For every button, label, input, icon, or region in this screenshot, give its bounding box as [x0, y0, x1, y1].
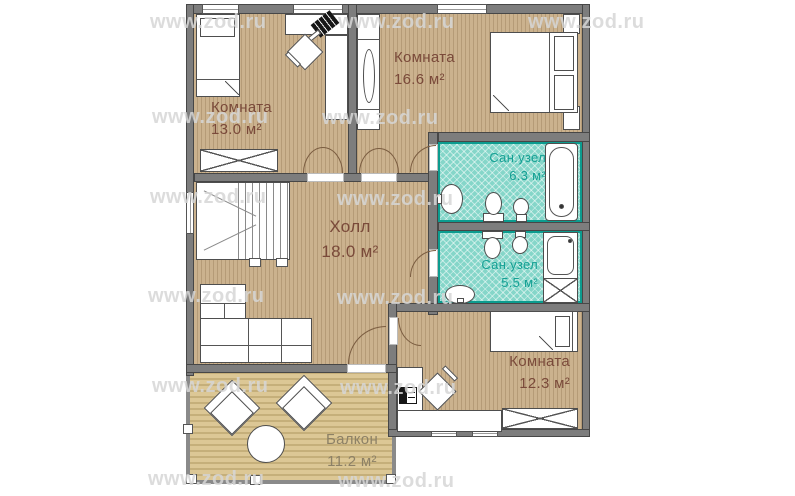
computer-icon: [399, 387, 417, 404]
drain: [568, 239, 572, 243]
faucet-icon: [457, 298, 464, 303]
bath-6-name: Сан.узел: [460, 149, 546, 167]
balcony-post: [186, 474, 197, 484]
room-166-label: Комната 16.6 м²: [394, 47, 455, 91]
balcony-post: [183, 424, 193, 434]
balcony-post: [250, 475, 261, 485]
balcony-rail-bottom: [186, 480, 396, 484]
hall-area: 18.0 м²: [298, 239, 402, 264]
sofa-icon: [200, 318, 312, 363]
faucet-icon: [437, 194, 442, 204]
shower-step: [543, 278, 578, 303]
balcony-name: Балкон: [303, 429, 401, 451]
round-table-icon: [247, 425, 285, 463]
wall-between-baths: [438, 222, 590, 231]
desk-icon: [397, 410, 502, 432]
bed-icon: [490, 311, 578, 352]
bed-icon: [196, 14, 240, 97]
door-opening-room13: [307, 173, 344, 182]
bath-5-area: 5.5 м²: [452, 274, 538, 292]
bidet-base: [516, 214, 527, 222]
nightstand-icon: [563, 14, 580, 34]
room-123-label: Комната 12.3 м²: [478, 351, 570, 395]
blanket-fold: [225, 81, 239, 95]
pillow-icon: [554, 75, 574, 110]
room-123-name: Комната: [478, 351, 570, 373]
bath-5-name: Сан.узел: [452, 256, 538, 274]
sink-icon: [440, 184, 463, 214]
wall-right: [582, 4, 590, 437]
room-166-name: Комната: [394, 47, 455, 69]
mirror-icon: [363, 49, 375, 103]
door-opening-balcony: [347, 364, 386, 373]
blanket-fold: [539, 336, 553, 350]
room-166-area: 16.6 м²: [394, 69, 455, 91]
stair-post: [276, 258, 288, 267]
stair-post: [249, 258, 261, 267]
window: [186, 192, 194, 234]
room-123-area: 12.3 м²: [478, 373, 570, 395]
wardrobe-icon: [357, 14, 380, 130]
shower-icon: [543, 232, 578, 279]
window: [437, 4, 487, 14]
desk-icon: [325, 35, 348, 120]
balcony-post: [386, 474, 396, 484]
pillow-icon: [200, 18, 235, 37]
wall-top: [186, 4, 590, 14]
bath-5-label: Сан.узел 5.5 м²: [452, 256, 538, 292]
hall-name: Холл: [298, 214, 402, 239]
wall-between-top-rooms: [348, 4, 357, 181]
room-13-label: Комната 13.0 м²: [211, 97, 272, 141]
wardrobe-icon: [200, 149, 278, 172]
room-13-area: 13.0 м²: [211, 119, 272, 141]
staircase-icon: [196, 182, 290, 260]
toilet-icon: [485, 192, 502, 215]
double-bed-icon: [490, 32, 578, 113]
hall-label: Холл 18.0 м²: [298, 214, 402, 264]
wall-below-room166: [438, 132, 590, 142]
balcony-area: 11.2 м²: [303, 451, 401, 473]
window: [293, 4, 343, 14]
drain: [559, 204, 564, 209]
balcony-label: Балкон 11.2 м²: [303, 429, 401, 473]
wardrobe-icon: [502, 408, 578, 429]
door-opening-room166: [361, 173, 397, 182]
bath-6-area: 6.3 м²: [460, 167, 546, 185]
blanket-fold: [493, 95, 509, 111]
pillow-icon: [554, 36, 574, 71]
door-opening-room123: [389, 317, 398, 345]
room-13-name: Комната: [211, 97, 272, 119]
window: [202, 4, 239, 14]
bath-6-label: Сан.узел 6.3 м²: [460, 149, 546, 185]
bathtub-icon: [545, 143, 578, 221]
stair-treads: [239, 183, 290, 259]
floor-plan: Комната 13.0 м² Комната 16.6 м² Сан.узел…: [0, 0, 795, 496]
bidet-icon: [512, 236, 528, 254]
pillow-icon: [555, 316, 570, 347]
wall-left: [186, 4, 194, 376]
